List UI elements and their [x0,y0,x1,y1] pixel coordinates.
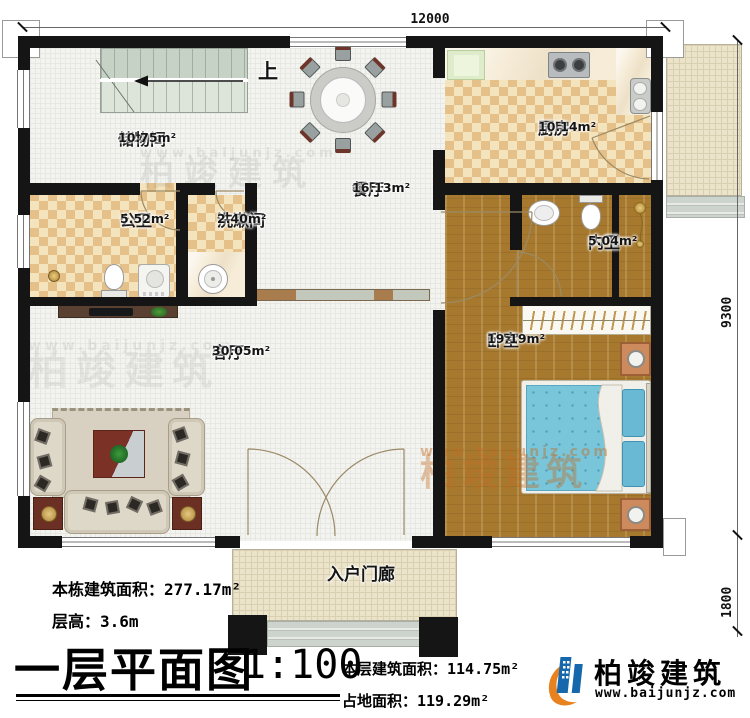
title-underline [16,700,340,701]
wardrobe-rod [523,320,650,321]
brand-logo-icon [543,652,589,708]
ensuite-sink [528,200,560,226]
dimension-line-top [22,27,665,28]
wall-segment [433,195,445,210]
wall-segment [510,195,522,250]
exterior-pad-se [663,518,686,556]
brand-url: www.baijunjz.com [595,686,736,701]
washer-panel [143,292,167,296]
stair-flight-lower [101,82,247,112]
title-underline [16,694,340,697]
side-terrace [666,44,742,196]
wall-segment [651,36,663,112]
window [17,402,30,496]
bed-pillow [622,441,645,487]
terrace-door-frame [651,112,663,180]
toilet-bowl [581,204,601,230]
porch-post-right [419,617,458,657]
nightstand-lamp [627,506,645,524]
wall-segment [510,297,651,306]
wall-segment [176,183,188,300]
bed-pillow [622,389,645,437]
nightstand [620,498,651,531]
dining-chair [335,138,351,153]
burner [572,58,586,72]
washer-lid [146,270,164,288]
toilet [100,264,128,300]
end-table [172,497,202,530]
wall-segment [18,36,30,70]
window [17,70,30,128]
toilet-tank [579,195,603,203]
staircase [100,48,248,113]
wall-segment [406,36,663,48]
wall-segment [18,36,290,48]
dining-chair [335,46,351,61]
wall-segment [651,180,663,548]
window [62,537,215,547]
ensuite-toilet [578,195,604,233]
shower-head [634,202,646,214]
dimension-line-right [737,40,738,637]
washroom-sink [198,264,228,294]
burner [553,58,567,72]
floor-plan: 上 [0,0,750,718]
table-lamp [41,506,57,522]
stove [548,52,590,78]
table-lamp [180,506,196,522]
stat-floor-height: 层高：3.6m [52,608,139,632]
window [492,537,630,547]
sink-basin [633,82,647,95]
wall-segment [18,128,30,215]
wall-segment [433,183,663,195]
window [290,37,406,47]
kitchen-fridge [447,50,485,80]
stair-flight-upper [101,49,247,78]
kitchen-sink [630,78,651,114]
plant [151,307,167,317]
floor-drain [48,270,60,282]
sink-basin [534,205,554,221]
dimension-right-main-value: 9300 [720,258,735,328]
wall-segment [18,536,62,548]
table-plant [110,445,128,463]
wall-segment [245,183,257,300]
terrace-steps [666,196,745,218]
stat-footprint-area: 占地面积：119.29m² [342,690,489,711]
sink-basin [633,98,647,111]
bed [521,380,651,494]
stat-building-total-area: 本栋建筑面积：277.17m² [52,576,241,600]
wall-segment [433,310,445,536]
dining-chair [290,92,305,108]
tv-console [58,305,178,318]
sink-drain [211,277,215,281]
sofa-pillow [105,500,120,515]
hall-sideboard [255,289,430,301]
nightstand-lamp [627,350,645,368]
dining-chair [382,92,397,108]
dining-table-hub [336,93,350,107]
wall-segment [30,297,257,306]
nightstand [620,342,651,376]
wall-segment [30,183,140,195]
wall-segment [215,536,240,548]
end-table [33,497,63,530]
coffee-table [93,430,145,478]
washing-machine [138,264,170,299]
window [17,215,30,268]
tv [89,308,133,316]
plan-title: 一层平面图 [14,634,254,700]
toilet-bowl [104,264,124,290]
wall-segment [433,150,445,183]
wall-segment [18,268,30,402]
stat-floor-area: 本层建筑面积：114.75m² [342,658,519,679]
dimension-top-value: 12000 [400,12,460,27]
dimension-right-porch-value: 1800 [720,556,735,618]
dining-table [310,67,376,133]
fridge-top [454,55,479,76]
wall-segment [412,536,492,548]
wall-segment [433,48,445,78]
